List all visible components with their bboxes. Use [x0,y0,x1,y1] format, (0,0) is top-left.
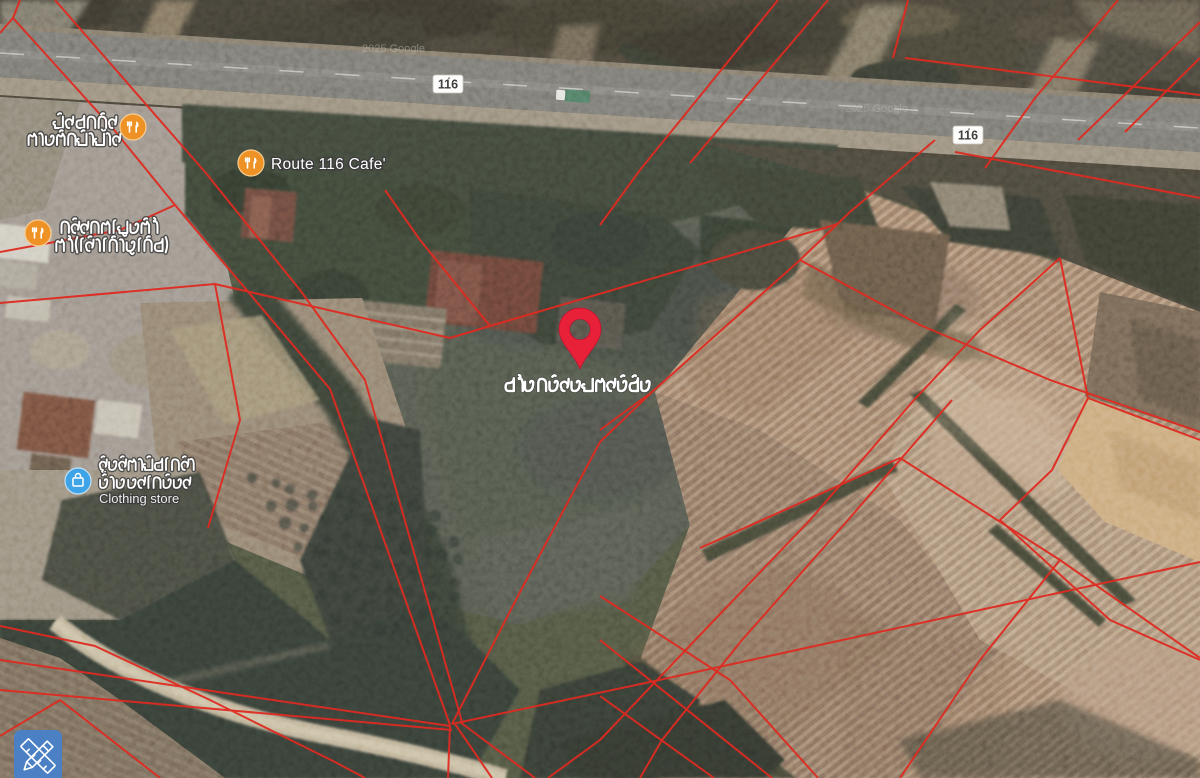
svg-text:2025 Google: 2025 Google [362,43,425,55]
svg-text:116: 116 [438,78,458,92]
svg-text:116: 116 [958,129,978,143]
svg-text:Route 116 Cafe': Route 116 Cafe' [271,156,386,173]
svg-text:Clothing store: Clothing store [99,491,179,506]
svg-text:2025 Google: 2025 Google [845,103,908,115]
